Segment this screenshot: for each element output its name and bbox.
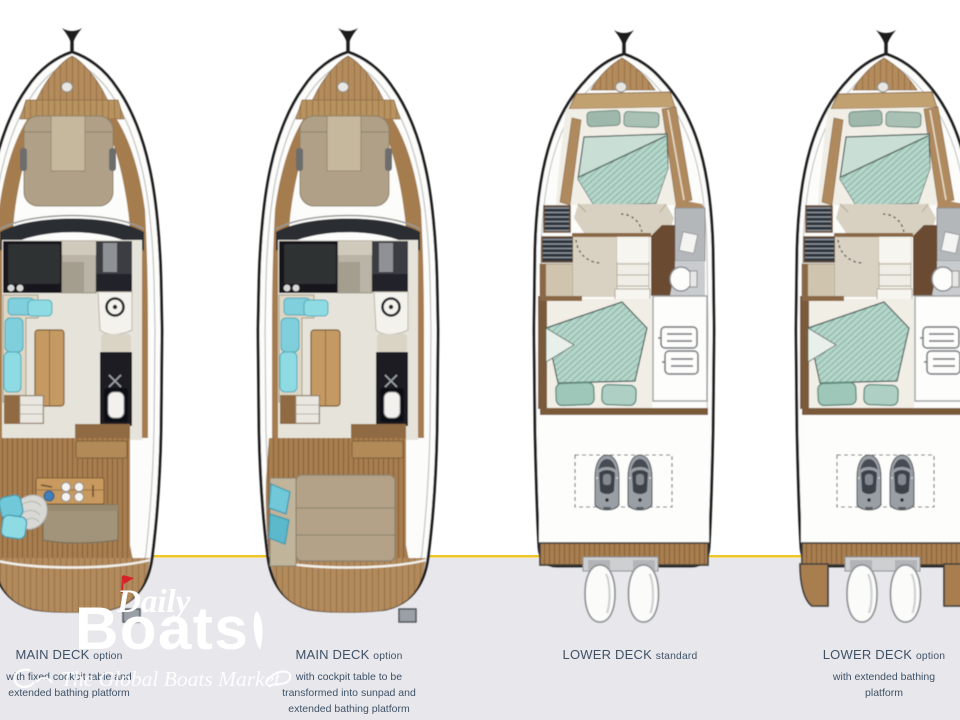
svg-text:extended bathing platform: extended bathing platform <box>288 703 410 715</box>
svg-text:with cockpit table to be: with cockpit table to be <box>295 671 402 683</box>
svg-text:transformed into sunpad and: transformed into sunpad and <box>282 687 416 699</box>
svg-text:The Global Boats Market: The Global Boats Market <box>61 667 281 691</box>
svg-text:platform: platform <box>865 687 903 699</box>
svg-text:with extended bathing: with extended bathing <box>832 671 935 683</box>
